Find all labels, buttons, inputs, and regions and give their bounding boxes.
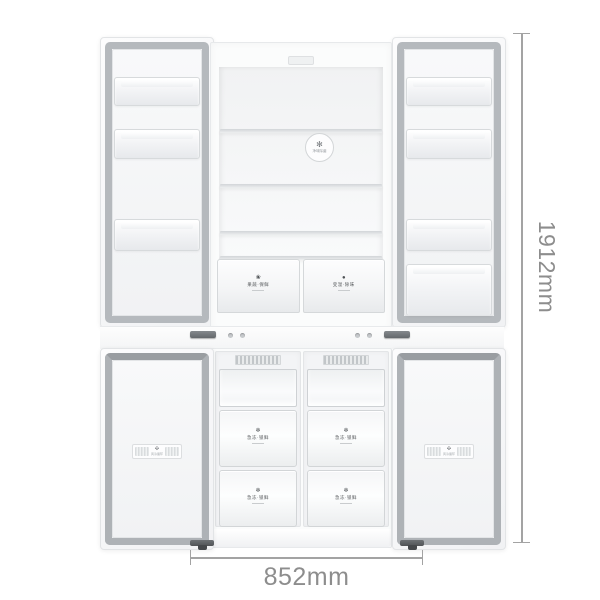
freezer-compartment: ❄ 急冻·锁鲜 ❄ 急冻·锁鲜 ❄ 急冻·锁鲜 [210,348,392,548]
door-vent-plaque: ✣ 风冷循环 [132,444,182,459]
vent-grille [457,447,471,456]
hinge-screw [240,333,245,338]
glass-shelf [220,184,382,188]
width-dimension-label: 852mm [240,563,373,592]
door-bin [406,129,492,159]
center-divider-band [100,326,504,349]
drawer-label: 急冻·锁鲜 [335,436,357,441]
height-dimension-cap-bottom [513,542,530,544]
freezer-column-right: ❄ 急冻·锁鲜 ❄ 急冻·锁鲜 [303,351,389,527]
glass-shelf [220,129,382,133]
upper-right-door [392,37,506,328]
door-bin [114,77,200,106]
freezer-shallow-bin [219,369,297,407]
upper-right-door-gasket [397,42,501,323]
crisper-drawer-left: ❀ 果蔬·保鲜 [217,259,300,313]
air-vent-grille [235,355,281,365]
height-dimension-cap-top [513,33,530,35]
freezer-column-left: ❄ 急冻·锁鲜 ❄ 急冻·锁鲜 [215,351,301,527]
vent-grille [135,447,149,456]
hinge-screw [228,333,233,338]
snowflake-icon: ❄ [255,428,260,434]
label-divider [340,443,352,444]
drawer-label-group: ❀ 果蔬·保鲜 [218,275,299,292]
freezer-drawer: ❄ 急冻·锁鲜 [307,410,385,467]
crisper-drawer-right: ● 变温·除味 [303,259,386,313]
drawer-label-group: ❄ 急冻·锁鲜 [308,488,384,505]
air-vent-grille [323,355,369,365]
lower-left-door: ✣ 风冷循环 [100,348,214,550]
airflow-icon: ✣ [447,447,451,452]
door-bin [406,264,492,316]
drawer-label-group: ❄ 急冻·锁鲜 [220,488,296,505]
label-divider [340,503,352,504]
cabinet-base [211,529,391,547]
snowflake-icon: ❄ [255,488,260,494]
glass-shelf [220,231,382,235]
plaque-label: 风冷循环 [443,453,455,456]
freezer-shallow-bin [307,369,385,407]
height-dimension-label: 1912mm [535,207,559,327]
door-bin [114,219,200,251]
label-divider [252,290,264,291]
width-dimension-cap-left [190,550,192,565]
lower-left-door-gasket: ✣ 风冷循环 [105,353,209,545]
hinge-screw [355,333,360,338]
crisper-drawer-row: ❀ 果蔬·保鲜 ● 变温·除味 [217,259,385,313]
airflow-icon: ✣ [155,447,159,452]
temp-zone-icon: ● [342,275,346,281]
drawer-label-group: ● 变温·除味 [304,275,385,292]
snowflake-icon: ❄ [343,488,348,494]
right-middle-hinge [384,331,410,338]
upper-left-door [100,37,214,328]
drawer-label: 果蔬·保鲜 [247,283,269,288]
drawer-label: 急冻·锁鲜 [335,496,357,501]
right-foot [408,545,417,550]
lower-right-door-gasket: ✣ 风冷循环 [397,353,501,545]
left-foot [198,545,207,550]
fridge-compartment: ✻ 净味除菌 ❀ 果蔬·保鲜 ● 变温·除味 [210,42,392,332]
door-vent-plaque: ✣ 风冷循环 [424,444,474,459]
door-bin [406,219,492,251]
freezer-drawer: ❄ 急冻·锁鲜 [307,470,385,527]
snowflake-icon: ❄ [343,428,348,434]
humidity-icon: ❀ [256,275,261,281]
width-dimension-cap-right [422,550,424,565]
vent-grille [427,447,441,456]
height-dimension-line [521,33,523,543]
label-divider [252,503,264,504]
drawer-label-group: ❄ 急冻·锁鲜 [308,428,384,445]
fridge-interior-back-wall: ✻ 净味除菌 [219,67,383,259]
left-middle-hinge [190,331,216,338]
drawer-label: 急冻·锁鲜 [247,436,269,441]
ionizer-fan-badge: ✻ 净味除菌 [305,133,334,162]
lower-right-door: ✣ 风冷循环 [392,348,506,550]
vent-grille [165,447,179,456]
width-dimension-line [190,557,423,559]
freezer-drawer: ❄ 急冻·锁鲜 [219,410,297,467]
plaque-label: 风冷循环 [151,453,163,456]
plaque-label-group: ✣ 风冷循环 [443,447,455,456]
label-divider [338,290,350,291]
interior-lamp [288,56,314,65]
label-divider [252,443,264,444]
plaque-label-group: ✣ 风冷循环 [151,447,163,456]
fan-badge-label: 净味除菌 [313,150,327,154]
upper-left-door-gasket [105,42,209,323]
drawer-label: 急冻·锁鲜 [247,496,269,501]
drawer-label-group: ❄ 急冻·锁鲜 [220,428,296,445]
product-image-refrigerator-open: ✻ 净味除菌 ❀ 果蔬·保鲜 ● 变温·除味 [0,0,600,600]
door-bin [114,129,200,159]
freezer-drawer: ❄ 急冻·锁鲜 [219,470,297,527]
door-bin [406,77,492,106]
hinge-screw [367,333,372,338]
drawer-label: 变温·除味 [333,283,355,288]
